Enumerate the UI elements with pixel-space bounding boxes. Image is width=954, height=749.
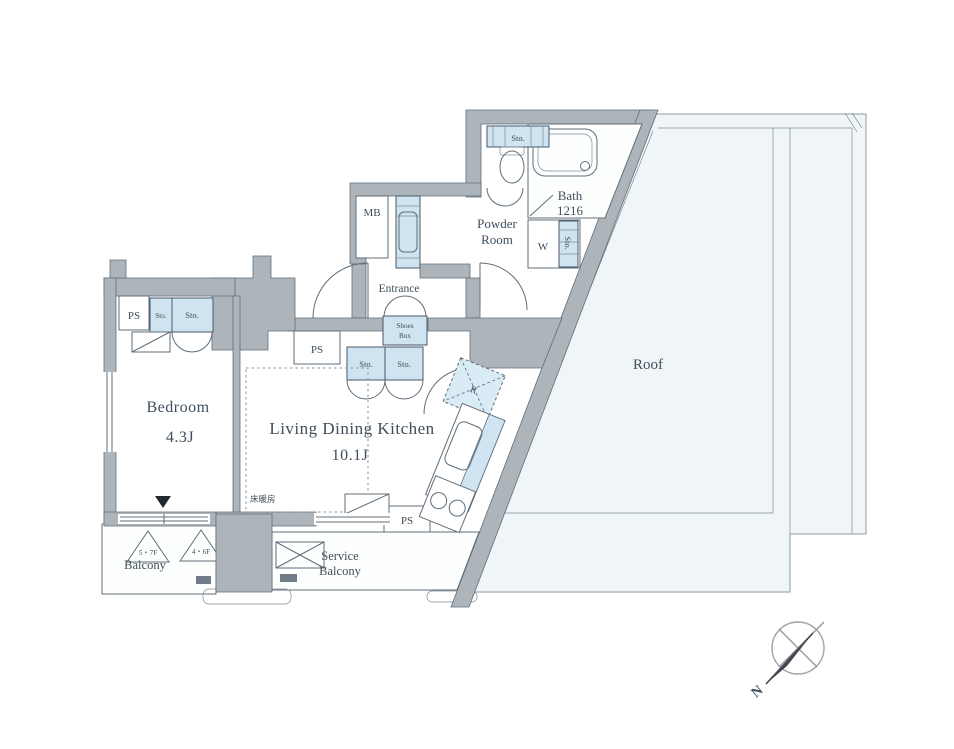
ldk-label: Living Dining Kitchen: [269, 419, 434, 438]
service-balcony: Service Balcony: [272, 532, 479, 590]
roof-label: Roof: [633, 357, 663, 373]
bedroom-label: Bedroom: [146, 399, 209, 416]
entrance-label: Entrance: [379, 283, 420, 295]
hatch-lower-label: 4・6F: [192, 548, 210, 556]
compass-arrow-tip: [817, 622, 824, 629]
shoes-box-label-2: Box: [399, 332, 411, 340]
ldk-area-label: 10.1J: [332, 447, 369, 464]
wall-ps-top: [288, 318, 384, 331]
mb-label: MB: [363, 207, 380, 219]
service-balcony-label-1: Service: [321, 549, 359, 563]
ps-kitchen-label: PS: [401, 515, 413, 527]
wall-bedroom-stub: [110, 260, 126, 278]
balcony-label: Balcony: [124, 558, 166, 572]
bedroom-storage-1-label: Sto.: [155, 312, 167, 320]
service-balcony-label-2: Balcony: [319, 564, 361, 578]
compass: N: [749, 622, 824, 701]
laundry-area: W Sto.: [528, 220, 580, 268]
bath-label: Bath: [558, 188, 583, 203]
service-balcony-drain: [280, 574, 297, 582]
ldk-storage-2-label: Sto.: [397, 359, 410, 369]
shoes-box: [383, 316, 427, 345]
ldk-storage-1-label: Sto.: [359, 359, 372, 369]
floorplan-page: Roof 5・7F 4・6F Balcony Service Balcony: [0, 0, 954, 749]
balcony: 5・7F 4・6F Balcony: [102, 524, 222, 594]
ps-hall-label: PS: [311, 344, 323, 356]
wall-bedroom-divider: [233, 296, 240, 514]
vanity: [396, 196, 420, 268]
shoes-box-label-1: Shoes: [396, 322, 413, 330]
wall-entrance-top: [420, 264, 470, 278]
powder-room-label-1: Powder: [477, 216, 517, 231]
ps-bedroom-label: PS: [128, 310, 140, 322]
bedroom-storage-2-label: Sto.: [185, 310, 198, 320]
meter-box: MB: [356, 196, 388, 258]
storage-toilet-label: Sto.: [511, 133, 524, 143]
north-label: N: [749, 683, 766, 701]
wall-bedroom-top: [104, 278, 235, 296]
wall-balcony-block: [216, 514, 272, 592]
powder-room-label-2: Room: [481, 232, 513, 247]
hatch-upper-label: 5・7F: [139, 549, 157, 557]
floor-heating-label: 床暖房: [250, 494, 276, 504]
floor-plan-canvas: Roof 5・7F 4・6F Balcony Service Balcony: [0, 0, 954, 749]
bath-size-label: 1216: [557, 203, 584, 218]
wall-entrance-right: [466, 278, 480, 318]
balcony-drain: [196, 576, 211, 584]
bedroom-area-label: 4.3J: [166, 429, 194, 446]
washer-label: W: [538, 241, 549, 253]
laundry-storage-label: Sto.: [563, 236, 573, 249]
wall-entrance-left: [352, 264, 366, 318]
